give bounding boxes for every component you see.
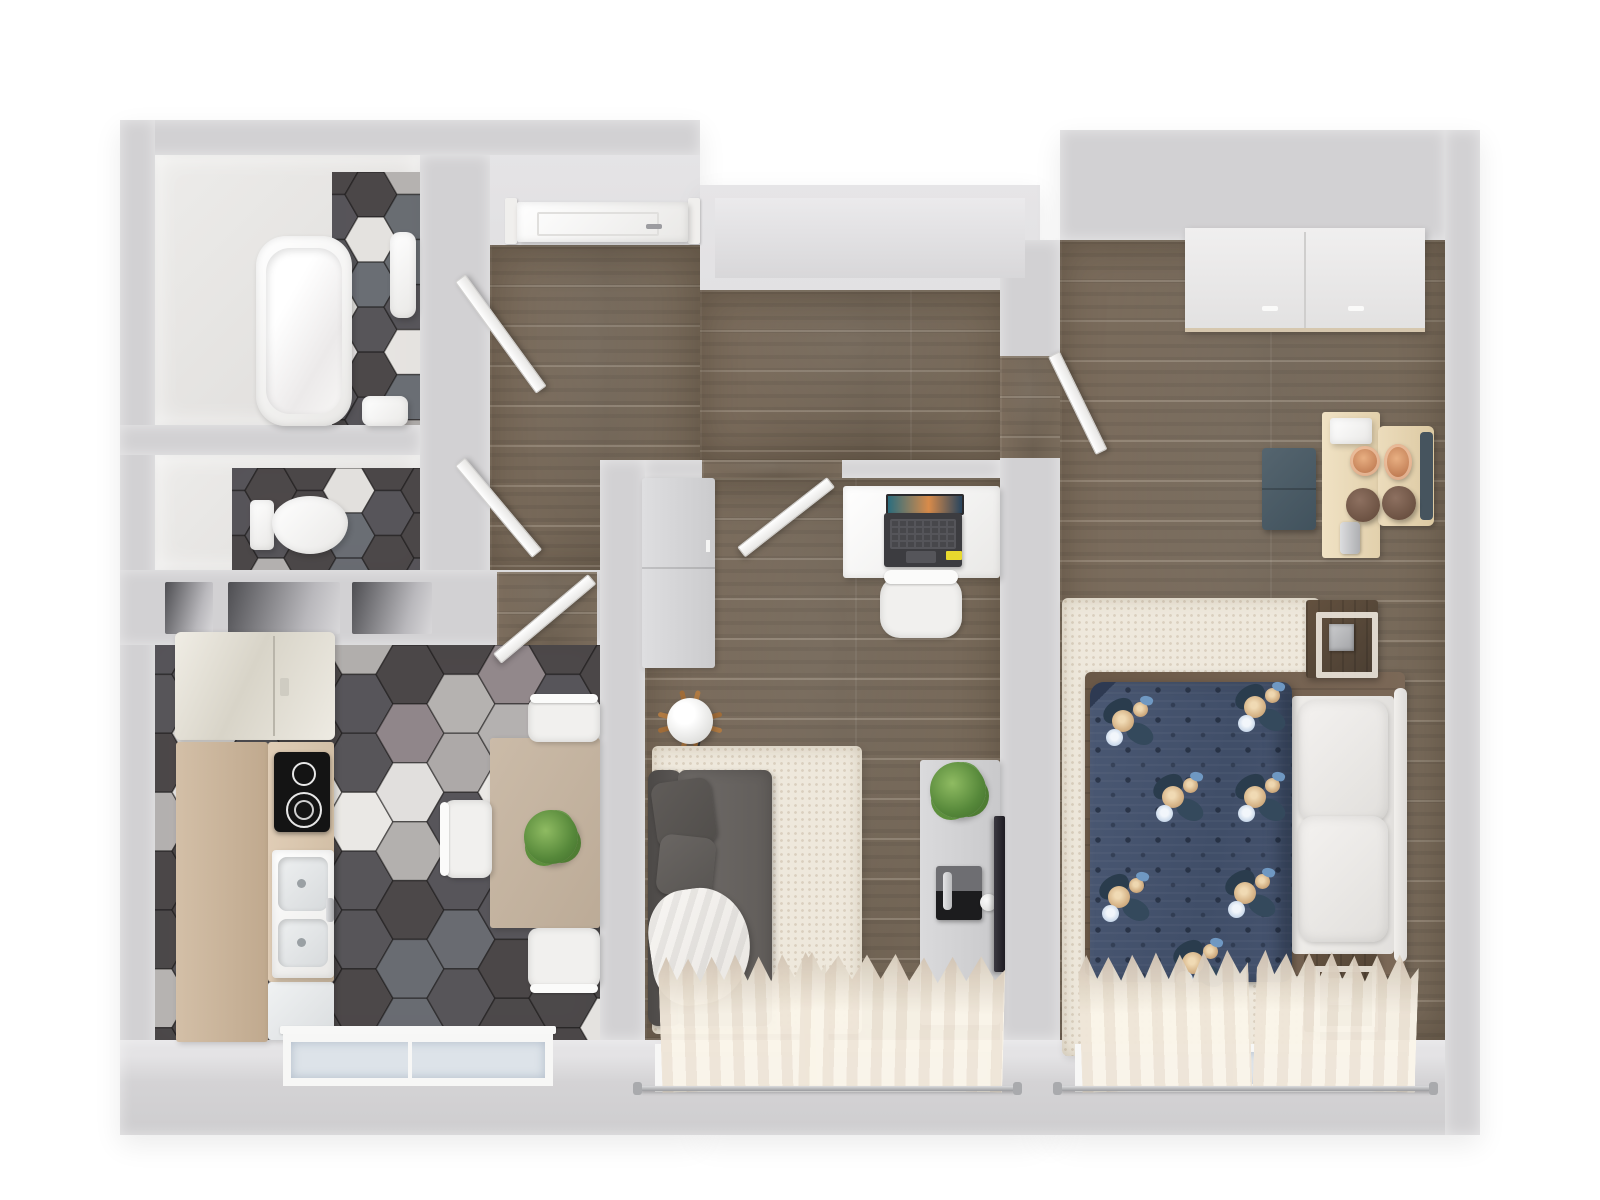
floor-lamp-globe <box>667 698 713 744</box>
dressing-chair-seat <box>1420 432 1433 520</box>
kitchen-counter-left <box>176 742 268 1042</box>
bedroom-doorway-threshold <box>1000 356 1060 458</box>
sink-drain-bottom <box>297 938 306 947</box>
tv-panel <box>994 816 1005 972</box>
bedroom-closet-handle-2 <box>1348 306 1364 311</box>
entry-door-jamb-left <box>505 198 517 244</box>
duvet-flower-cluster <box>1228 874 1284 930</box>
game-console-bar <box>943 872 952 910</box>
duvet-flower-cluster <box>1156 778 1212 834</box>
bathroom-wash-basin <box>362 396 408 426</box>
bed-headboard-pad <box>1394 688 1407 962</box>
bedroom-closet-handle-1 <box>1262 306 1278 311</box>
bed-duvet-fold <box>1090 682 1116 708</box>
nightstand-top-lamp <box>1329 624 1354 651</box>
kitchen-window-sill <box>280 1026 556 1034</box>
desk-chair-back <box>884 570 958 584</box>
copper-tray-oval <box>1384 444 1412 480</box>
bed-pillow-2 <box>1298 816 1388 942</box>
entry-door-jamb-right <box>688 198 700 244</box>
bedroom-curtain-rod <box>1060 1086 1432 1091</box>
living-curtain-right <box>798 947 1006 1092</box>
copper-tray-round <box>1350 446 1380 476</box>
duvet-flower-cluster <box>1238 688 1294 744</box>
bathroom-pedestal-sink <box>390 232 416 318</box>
dining-chair-left <box>444 800 492 878</box>
entry-door-handle <box>646 224 662 229</box>
living-wardrobe <box>642 478 715 668</box>
outer-wall-right <box>1445 130 1480 1135</box>
duvet-flower-cluster <box>1106 702 1162 758</box>
sink-faucet <box>326 898 334 922</box>
fridge-door-seam <box>273 636 275 736</box>
toilet-tank <box>250 500 274 550</box>
wall-kitchen-living <box>600 460 645 1040</box>
cooktop-burner-small <box>292 762 316 786</box>
entry-alcove <box>715 198 1025 278</box>
laptop-touchpad <box>906 551 936 563</box>
floor-plan-render <box>0 0 1600 1200</box>
tv-stand-plant <box>930 762 986 818</box>
desk-chair <box>880 576 962 638</box>
kitchen-window <box>283 1034 553 1086</box>
wall-niche-3 <box>352 582 432 634</box>
laptop-keyboard <box>890 519 956 549</box>
living-curtain-rod <box>640 1086 1016 1091</box>
sink-drain-top <box>297 879 306 888</box>
bedroom-closet-edge <box>1185 328 1425 332</box>
cooktop-burner-large <box>286 792 322 828</box>
hallway-floor-east <box>700 290 1007 460</box>
kitchen-window-mullion <box>408 1040 412 1080</box>
entry-door-panel-line <box>537 212 659 236</box>
duvet-flower-cluster <box>1238 778 1294 834</box>
bed-duvet <box>1090 682 1292 982</box>
living-wardrobe-handle <box>706 540 710 552</box>
bedroom-bench-seam <box>1262 488 1316 490</box>
living-doorway-threshold <box>702 460 842 478</box>
bedroom-rod-finial-right <box>1429 1082 1438 1095</box>
fridge <box>175 632 335 740</box>
dining-chair-bottom <box>528 928 600 988</box>
laptop-sticker <box>946 551 962 560</box>
living-rod-finial-left <box>633 1082 642 1095</box>
dining-chair-top-back <box>530 694 598 703</box>
dressing-table-kettle <box>1340 522 1360 554</box>
outer-wall-top <box>120 120 700 155</box>
laptop-screen <box>886 494 964 515</box>
bedroom-closet-seam <box>1304 232 1306 328</box>
living-wardrobe-seam <box>642 567 715 569</box>
dining-plant <box>524 810 578 864</box>
bed-pillow-1 <box>1298 700 1388 822</box>
bathtub-basin <box>266 248 342 414</box>
bedroom-rod-finial-left <box>1053 1082 1062 1095</box>
dining-chair-top <box>528 698 600 742</box>
dressing-stool-2 <box>1382 486 1416 520</box>
dressing-stool-1 <box>1346 488 1380 522</box>
dining-chair-bottom-back <box>530 984 598 993</box>
wall-bathroom-hallway <box>420 155 490 600</box>
wall-bathroom-wc <box>120 425 420 455</box>
dining-chair-left-back <box>440 802 449 876</box>
wall-niche-1 <box>165 582 213 634</box>
dressing-table-tray <box>1330 418 1372 444</box>
wall-niche-2 <box>228 582 340 634</box>
duvet-flower-cluster <box>1102 878 1158 934</box>
fridge-handle <box>280 678 289 696</box>
wall-bedroom-top <box>1060 130 1445 240</box>
living-rod-finial-right <box>1013 1082 1022 1095</box>
